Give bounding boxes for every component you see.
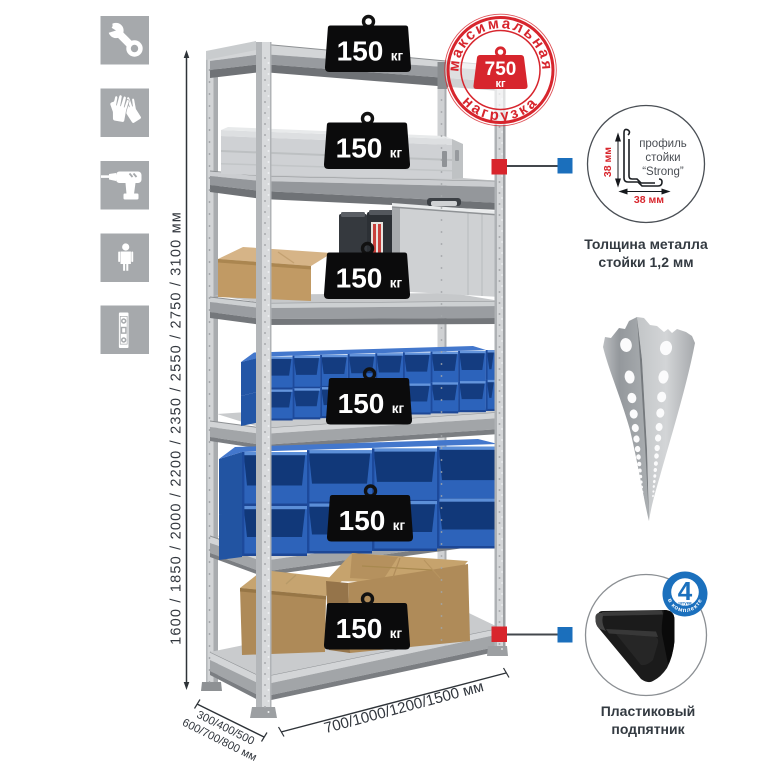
svg-text:150: 150 xyxy=(337,36,384,67)
svg-text:“Strong”: “Strong” xyxy=(642,166,684,178)
svg-text:150: 150 xyxy=(336,263,383,294)
svg-text:Пластиковый: Пластиковый xyxy=(601,703,696,719)
svg-text:стойки: стойки xyxy=(645,152,680,164)
svg-text:кг: кг xyxy=(390,276,403,291)
svg-text:кг: кг xyxy=(393,518,406,533)
svg-text:кг: кг xyxy=(392,401,405,416)
svg-text:подпятник: подпятник xyxy=(611,721,685,737)
svg-text:штуки: штуки xyxy=(678,601,692,606)
svg-text:кг: кг xyxy=(391,49,404,64)
svg-text:кг: кг xyxy=(495,78,506,90)
svg-text:кг: кг xyxy=(390,146,403,161)
svg-text:150: 150 xyxy=(336,133,383,164)
svg-text:профиль: профиль xyxy=(639,138,687,150)
svg-text:38 мм: 38 мм xyxy=(602,147,614,177)
svg-text:150: 150 xyxy=(336,613,383,644)
svg-text:стойки 1,2 мм: стойки 1,2 мм xyxy=(598,254,693,270)
svg-text:38 мм: 38 мм xyxy=(634,194,664,206)
svg-text:150: 150 xyxy=(338,388,385,419)
svg-text:750: 750 xyxy=(485,59,517,80)
svg-text:1600 / 1850 / 2000 / 2200 / 23: 1600 / 1850 / 2000 / 2200 / 2350 / 2550 … xyxy=(169,211,185,645)
svg-text:Толщина металла: Толщина металла xyxy=(584,236,708,252)
svg-text:150: 150 xyxy=(339,505,386,536)
svg-text:кг: кг xyxy=(390,626,403,641)
